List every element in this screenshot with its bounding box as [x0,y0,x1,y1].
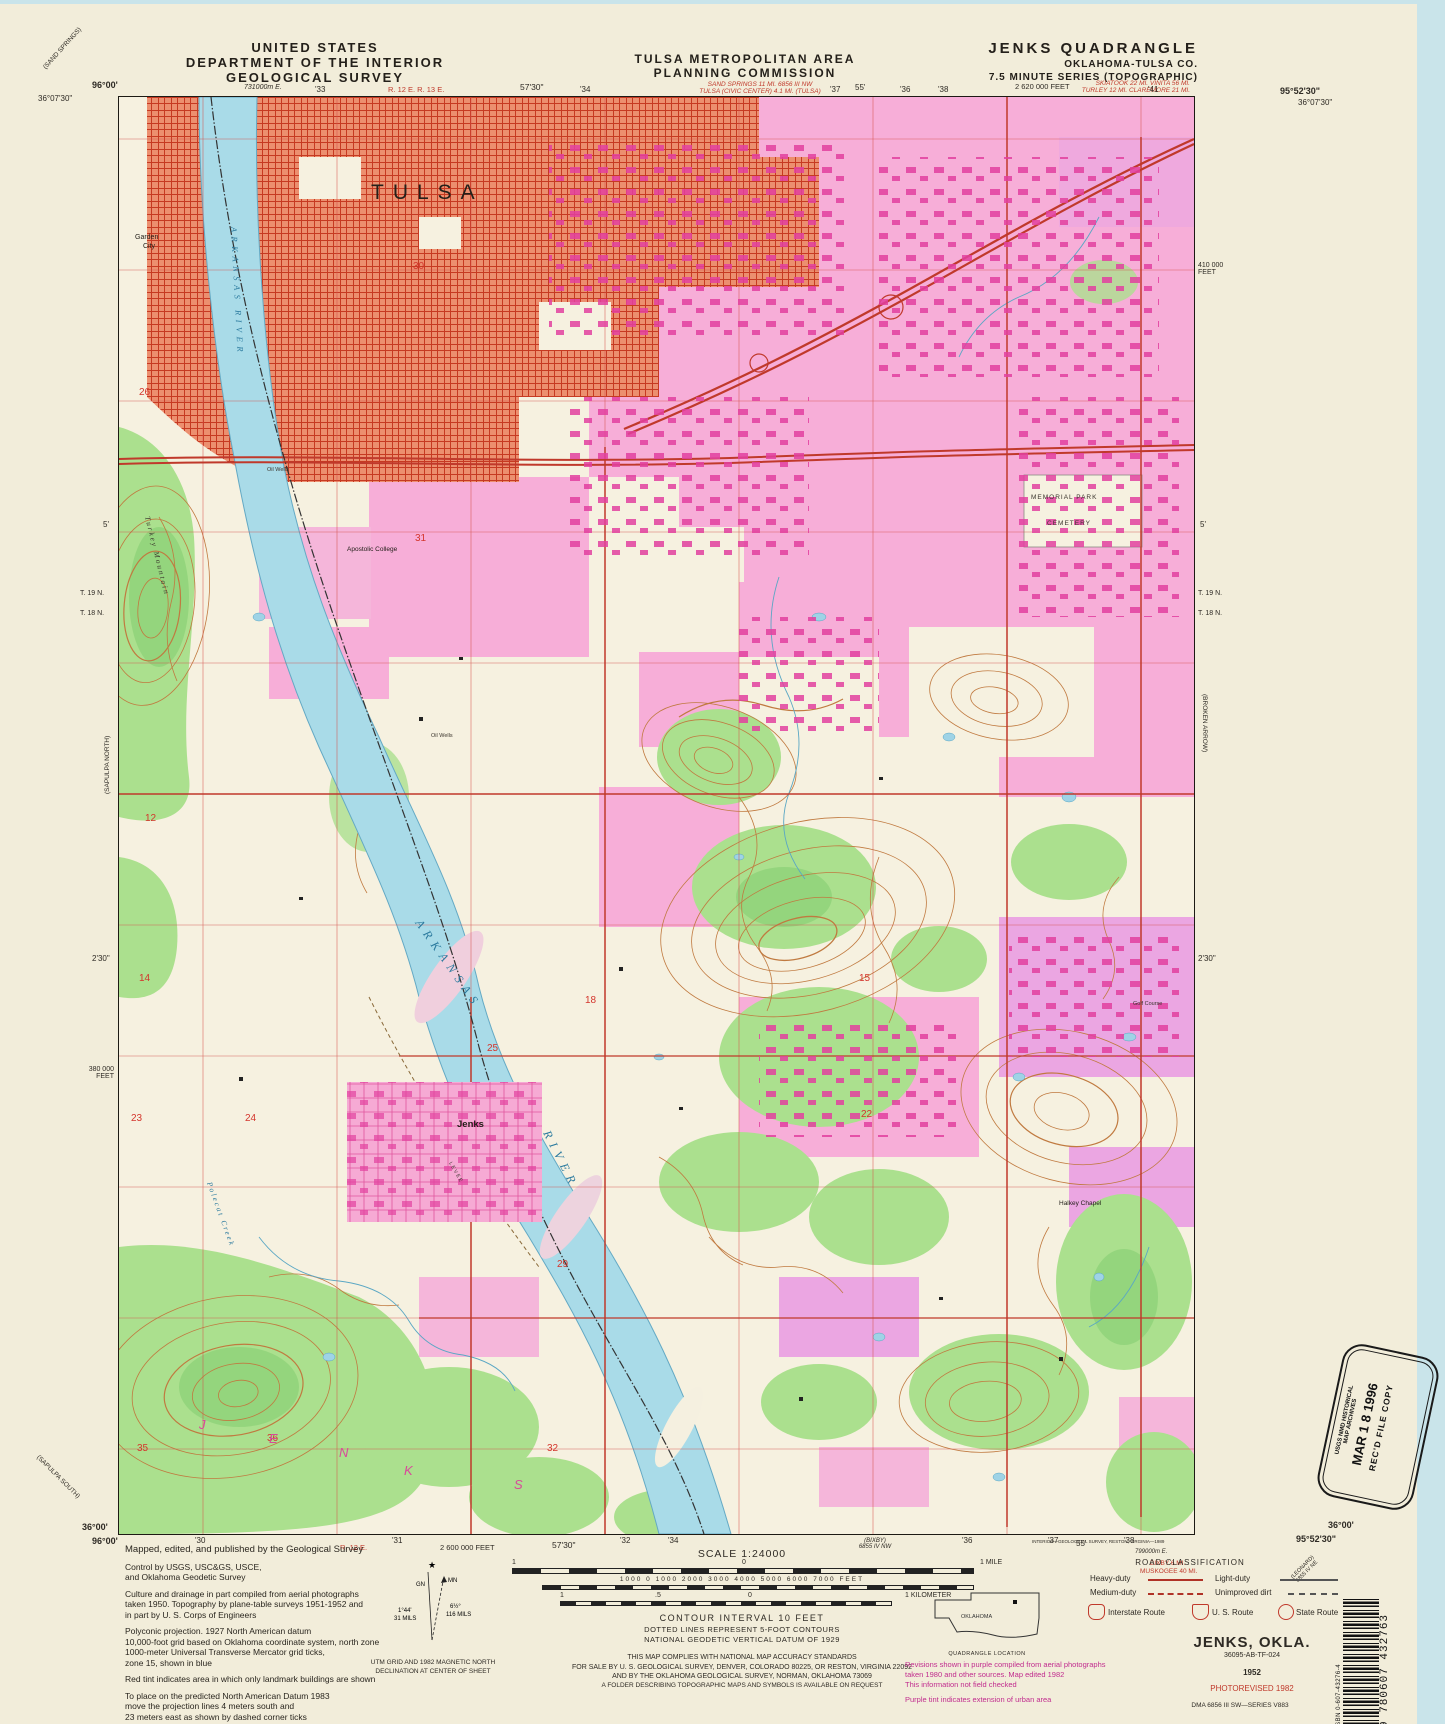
svg-text:32: 32 [547,1443,559,1454]
us-route-shield-icon [1192,1604,1209,1620]
agency-line2: DEPARTMENT OF THE INTERIOR [130,55,500,70]
revision-line3: This information not field checked [905,1680,1106,1690]
svg-text:14: 14 [139,973,151,984]
mn-angle: 6½° [450,1603,461,1610]
svg-text:S: S [514,1477,523,1492]
tick-b5730: 57'30" [552,1540,576,1550]
agency-line3: GEOLOGICAL SURVEY [130,70,500,85]
tick-230-left: 2'30" [92,954,110,963]
label-golf: Golf Course [1133,1001,1162,1007]
quad-location-marker [1013,1600,1017,1604]
label-halkey: Halkey Chapel [1059,1200,1102,1207]
scale-bar-km [560,1601,892,1606]
tick-t18n-left: T. 18 N. [80,610,104,617]
declination-caption2: DECLINATION AT CENTER OF SHEET [368,1668,498,1677]
revision-notes: Revisions shown in purple compiled from … [905,1660,1106,1705]
scale-km-half: .5 [655,1592,661,1599]
roadclass-heavy-swatch [1148,1579,1203,1581]
scanned-map-page: UNITED STATES DEPARTMENT OF THE INTERIOR… [0,0,1445,1724]
credits-p3: Culture and drainage in part compiled fr… [125,1589,395,1621]
tick-b32: '32 [620,1536,630,1545]
sale-line2: AND BY THE OKLAHOMA GEOLOGICAL SURVEY, N… [612,1673,872,1680]
tick-38: '38 [938,85,948,94]
corner-quad-sand-springs: (SAND SPRINGS) [42,26,83,70]
scale-bar-mile [512,1568,974,1574]
mn-label: MN [448,1578,457,1584]
barcode-bars-icon [1343,1598,1379,1724]
adjoining-sapulpa-south: (SAPULPA SOUTH) [35,1454,81,1500]
credits-p1: Mapped, edited, and published by the Geo… [125,1545,395,1556]
quad-title-block: JENKS QUADRANGLE OKLAHOMA-TULSA CO. 7.5 … [930,40,1198,83]
label-garden1: Garden [135,234,158,241]
tick-bixby: (BIXBY)6855 IV NW [845,1538,905,1550]
label-oil2: Oil Wells [431,733,453,739]
svg-text:18: 18 [585,995,597,1006]
svg-text:26: 26 [139,387,151,398]
interstate-shield-icon [1088,1604,1105,1620]
roadclass-unimproved-label: Unimproved dirt [1215,1588,1271,1597]
svg-text:J: J [198,1417,206,1432]
roadclass-light-swatch [1280,1579,1338,1581]
contour-datum: NATIONAL GEODETIC VERTICAL DATUM OF 1929 [644,1635,840,1644]
label-jenks-town: Jenks [457,1119,484,1130]
received-stamp: USGS NMD HISTORICAL MAP ARCHIVES MAR 1 8… [1314,1341,1442,1514]
svg-text:35: 35 [137,1443,149,1454]
corner-lat-br: 36°00' [1328,1520,1354,1530]
tick-41: '41 [1148,85,1158,94]
barcode-isbn: ISBN 0-607-43276-4 [1336,1598,1342,1724]
credits-p6: To place on the predicted North American… [125,1691,395,1723]
tick-t19n-right: T. 19 N. [1198,590,1222,597]
topo-map-svg: TULSA Garden City ARKANSAS RIVER Turkey … [119,97,1194,1534]
tick-feet380: 380 000FEET [76,1066,114,1080]
jenks-town [347,1082,542,1222]
declination-svg: ★ GN MN 1°44' 31 MILS 6½° 116 MILS [368,1556,498,1652]
gn-label: GN [416,1582,425,1588]
mn-arrowhead [441,1576,447,1583]
label-apostolic: Apostolic College [347,546,398,553]
tick-b36: '36 [962,1536,972,1545]
sale-line1: FOR SALE BY U. S. GEOLOGICAL SURVEY, DEN… [572,1664,912,1671]
scale-mile-zero: 0 [742,1559,746,1566]
roadclass-heavy-label: Heavy-duty [1090,1574,1130,1583]
scale-mile-left: 1 [512,1559,516,1566]
accuracy-note: THIS MAP COMPLIES WITH NATIONAL MAP ACCU… [627,1654,856,1661]
state-route-circle-icon [1278,1604,1294,1620]
tick-red-muskogee: MUSKOGEE 40 MI. [1140,1568,1197,1575]
quad-title: JENKS QUADRANGLE [930,40,1198,57]
tick-t19n-left: T. 19 N. [80,590,104,597]
svg-text:K: K [404,1463,414,1478]
label-oil1: Oil Wells [267,467,289,473]
state-name: OKLAHOMA [961,1614,993,1620]
contour-dotted: DOTTED LINES REPRESENT 5-FOOT CONTOURS [644,1625,840,1634]
declination-diagram: ★ GN MN 1°44' 31 MILS 6½° 116 MILS UTM G… [368,1556,498,1676]
label-tulsa: TULSA [371,181,484,204]
tick-feet410: 410 000FEET [1198,262,1223,276]
quadrangle-location: OKLAHOMA QUADRANGLE LOCATION [928,1588,1046,1657]
credits-p2: Control by USGS, USC&GS, USCE,and Oklaho… [125,1562,395,1583]
label-memorial2: CEMETERY [1047,520,1091,527]
contour-interval: CONTOUR INTERVAL 10 FEET [660,1613,825,1623]
corner-lon-tl: 96°00' [92,80,118,90]
stamp-inner: USGS NMD HISTORICAL MAP ARCHIVES MAR 1 8… [1320,1346,1436,1507]
tick-feet2620: 2 620 000 FEET [1015,82,1070,91]
oklahoma-outline: OKLAHOMA [931,1588,1043,1644]
label-memorial1: MEMORIAL PARK [1031,494,1097,501]
tick-5730: 57'30" [520,82,544,92]
scale-feet-labels: 1000 0 1000 2000 3000 4000 5000 6000 700… [620,1576,864,1583]
commission-line2: PLANNING COMMISSION [560,66,930,80]
agency-line1: UNITED STATES [130,40,500,55]
corner-lat-tl: 36°07'30" [38,94,72,103]
tick-37: '37 [830,85,840,94]
corner-lat-bl: 36°00' [82,1522,108,1532]
commission-line1: TULSA METROPOLITAN AREA [560,52,930,66]
tick-b31: '31 [392,1536,402,1545]
tick-34: '34 [580,85,590,94]
corner-lon-tr: 95°52'30" [1280,86,1320,96]
scale-km-zero: 0 [748,1592,752,1599]
adjoining-sapulpa-north: (SAPULPA NORTH) [104,736,111,794]
tick-t18n-right: T. 18 N. [1198,610,1222,617]
credits-p5: Red tint indicates area in which only la… [125,1674,395,1685]
tick-36: '36 [900,85,910,94]
tick-33: '33 [315,85,325,94]
svg-text:23: 23 [131,1113,143,1124]
commission-title: TULSA METROPOLITAN AREA PLANNING COMMISS… [560,52,930,80]
credits-block: Mapped, edited, and published by the Geo… [125,1545,395,1722]
svg-text:22: 22 [861,1109,873,1120]
scale-bar-feet [542,1585,974,1590]
corner-lat-tr: 36°07'30" [1298,98,1332,107]
agency-title: UNITED STATES DEPARTMENT OF THE INTERIOR… [130,40,500,85]
svg-text:29: 29 [557,1259,569,1270]
scale-km-left: 1 [560,1592,564,1599]
tick-feet2600: 2 600 000 FEET [440,1543,495,1552]
svg-text:30: 30 [413,261,425,272]
tick-interior-credit: INTERIOR—GEOLOGICAL SURVEY, RESTON, VIRG… [1032,1539,1164,1544]
revision-line1: Revisions shown in purple compiled from … [905,1660,1106,1670]
folder-note: A FOLDER DESCRIBING TOPOGRAPHIC MAPS AND… [602,1682,883,1689]
tick-b34: '34 [668,1536,678,1545]
svg-text:25: 25 [487,1043,499,1054]
declination-caption1: UTM GRID AND 1982 MAGNETIC NORTH [368,1659,498,1668]
roadclass-interstate-label: Interstate Route [1108,1608,1165,1617]
svg-text:15: 15 [859,973,871,984]
tick-utm799: 799000m E. [1135,1549,1167,1555]
dma-series: DMA 6856 III SW—SERIES V883 [1191,1702,1288,1709]
gn-angle: 1°44' [398,1608,412,1614]
adjoining-quad-note-center: SAND SPRINGS 11 MI. 6856 III NWTULSA (CI… [640,81,880,95]
revision-line4: Purple tint indicates extension of urban… [905,1695,1106,1705]
svg-text:E: E [269,1431,278,1446]
scale-mile-right: 1 MILE [980,1559,1002,1566]
svg-text:12: 12 [145,813,157,824]
svg-text:24: 24 [245,1113,257,1124]
quadloc-caption: QUADRANGLE LOCATION [928,1651,1046,1657]
map-code: 36095-AB-TF-024 [1224,1652,1280,1659]
tick-5min-left: 5' [103,520,109,529]
photorevised: PHOTOREVISED 1982 [1210,1684,1293,1693]
roadclass-state-label: State Route [1296,1608,1338,1617]
tick-utm-731: 731000m E. [244,84,282,91]
gn-mils: 31 MILS [394,1616,416,1622]
barcode: ISBN 0-607-43276-4 9 780607 432763 [1336,1598,1408,1724]
svg-text:N: N [339,1445,349,1460]
barcode-digits: 9 780607 432763 [1379,1598,1391,1724]
tick-r12-r13: R. 12 E. R. 13 E. [388,85,444,94]
tick-5min-right: 5' [1200,520,1206,529]
roadclass-light-label: Light-duty [1215,1574,1250,1583]
map-canvas: TULSA Garden City ARKANSAS RIVER Turkey … [118,96,1195,1535]
quad-subtitle: OKLAHOMA-TULSA CO. [930,59,1198,70]
tick-55: 55' [855,83,865,92]
barcode-block: ISBN 0-607-43276-4 9 780607 432763 [1336,1598,1408,1724]
label-garden2: City [143,243,156,250]
corner-lon-bl: 96°00' [92,1536,118,1546]
mn-mils: 116 MILS [446,1612,471,1618]
map-year: 1952 [1243,1668,1261,1677]
adjoining-broken-arrow: (BROKEN ARROW) [1201,694,1208,752]
map-sheet: UNITED STATES DEPARTMENT OF THE INTERIOR… [0,4,1417,1724]
roadclass-us-label: U. S. Route [1212,1608,1253,1617]
corner-lon-br: 95°52'30" [1296,1534,1336,1544]
star-icon: ★ [428,1560,436,1570]
roadclass-medium-label: Medium-duty [1090,1588,1136,1597]
roadclass-medium-swatch [1148,1593,1203,1595]
map-name: JENKS, OKLA. [1193,1634,1310,1651]
svg-text:31: 31 [415,533,427,544]
roadclass-title: ROAD CLASSIFICATION [1135,1558,1245,1567]
credits-p4: Polyconic projection. 1927 North America… [125,1626,395,1668]
tick-230-right: 2'30" [1198,954,1216,963]
roadclass-unimproved-swatch [1288,1593,1338,1595]
revision-line2: taken 1980 and other sources. Map edited… [905,1670,1106,1680]
